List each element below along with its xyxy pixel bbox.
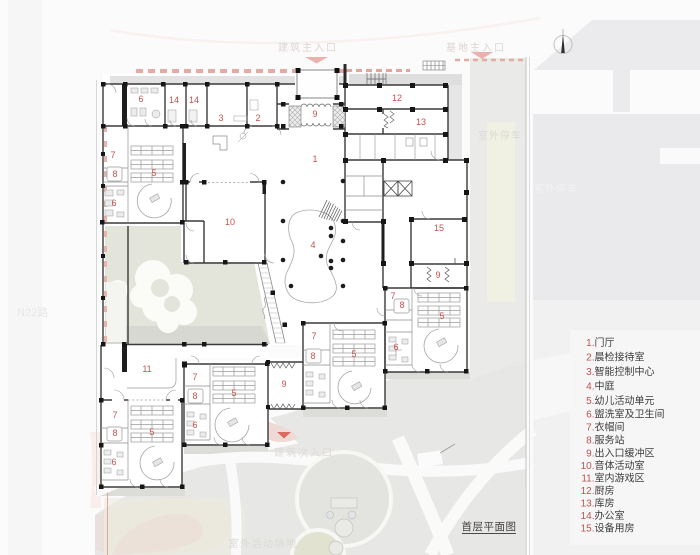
- svg-text:室内游戏区: 室内游戏区: [595, 472, 645, 485]
- svg-text:6.: 6.: [586, 410, 594, 421]
- svg-text:5: 5: [151, 168, 156, 178]
- svg-text:1.: 1.: [586, 338, 594, 349]
- svg-text:室外活动场地: 室外活动场地: [229, 537, 298, 550]
- svg-text:5: 5: [439, 311, 444, 321]
- svg-text:2.: 2.: [586, 353, 594, 364]
- svg-text:14: 14: [189, 95, 199, 105]
- svg-text:13.: 13.: [581, 499, 595, 510]
- svg-text:4: 4: [310, 240, 315, 250]
- svg-text:8: 8: [112, 169, 117, 179]
- svg-text:门厅: 门厅: [595, 336, 615, 349]
- svg-text:N22路: N22路: [17, 306, 48, 319]
- svg-text:9: 9: [281, 379, 286, 389]
- svg-text:14.: 14.: [581, 511, 595, 522]
- svg-text:9: 9: [312, 109, 317, 119]
- svg-text:3.: 3.: [586, 367, 594, 378]
- svg-text:设备用房: 设备用房: [595, 522, 635, 535]
- svg-text:6: 6: [393, 342, 398, 352]
- svg-text:10.: 10.: [581, 461, 595, 472]
- svg-text:5: 5: [351, 349, 356, 359]
- svg-text:5: 5: [231, 388, 236, 398]
- svg-text:6: 6: [192, 420, 197, 430]
- svg-text:6: 6: [138, 94, 143, 104]
- svg-text:9.: 9.: [586, 449, 594, 460]
- svg-text:音体活动室: 音体活动室: [595, 459, 645, 472]
- svg-text:15: 15: [434, 223, 444, 233]
- svg-text:5.: 5.: [586, 396, 594, 407]
- svg-text:建筑主入口: 建筑主入口: [278, 41, 338, 54]
- svg-text:晨检接待室: 晨检接待室: [595, 351, 645, 364]
- svg-text:2: 2: [255, 113, 260, 123]
- svg-text:8: 8: [192, 391, 197, 401]
- svg-text:室外停车: 室外停车: [478, 129, 522, 142]
- svg-text:12.: 12.: [581, 486, 595, 497]
- svg-text:库房: 库房: [595, 497, 615, 510]
- svg-text:盥洗室及卫生间: 盥洗室及卫生间: [595, 408, 665, 421]
- svg-text:服务站: 服务站: [595, 434, 625, 447]
- svg-text:8: 8: [399, 300, 404, 310]
- svg-text:15.: 15.: [581, 524, 595, 535]
- svg-text:8.: 8.: [586, 436, 594, 447]
- svg-text:首层平面图: 首层平面图: [462, 520, 517, 533]
- svg-text:幼儿活动单元: 幼儿活动单元: [595, 394, 655, 407]
- svg-text:11: 11: [142, 364, 151, 374]
- svg-text:出入口缓冲区: 出入口缓冲区: [595, 447, 655, 460]
- svg-text:8: 8: [112, 428, 117, 438]
- svg-text:6: 6: [111, 457, 116, 467]
- svg-text:7: 7: [192, 372, 197, 382]
- svg-text:13: 13: [416, 117, 426, 127]
- svg-text:7: 7: [112, 410, 117, 420]
- svg-text:11.: 11.: [581, 474, 594, 485]
- svg-text:7: 7: [311, 331, 316, 341]
- svg-text:厨房: 厨房: [595, 484, 615, 497]
- svg-text:衣帽间: 衣帽间: [595, 421, 625, 434]
- svg-text:7: 7: [390, 291, 395, 301]
- svg-text:建筑次入口: 建筑次入口: [274, 446, 334, 459]
- svg-text:3: 3: [218, 113, 223, 123]
- svg-text:智能控制中心: 智能控制中心: [595, 365, 655, 378]
- svg-text:7.: 7.: [586, 423, 594, 434]
- svg-text:中庭: 中庭: [595, 380, 615, 393]
- svg-text:5: 5: [149, 427, 154, 437]
- svg-text:14: 14: [169, 95, 179, 105]
- svg-text:7: 7: [110, 150, 115, 160]
- svg-text:4.: 4.: [586, 382, 594, 393]
- svg-text:1: 1: [312, 154, 317, 164]
- svg-text:10: 10: [225, 217, 235, 227]
- svg-text:12: 12: [392, 93, 402, 103]
- svg-text:办公室: 办公室: [595, 509, 625, 522]
- svg-text:6: 6: [111, 198, 116, 208]
- svg-text:9: 9: [435, 270, 440, 280]
- svg-text:室外停车: 室外停车: [534, 182, 578, 195]
- svg-text:8: 8: [310, 351, 315, 361]
